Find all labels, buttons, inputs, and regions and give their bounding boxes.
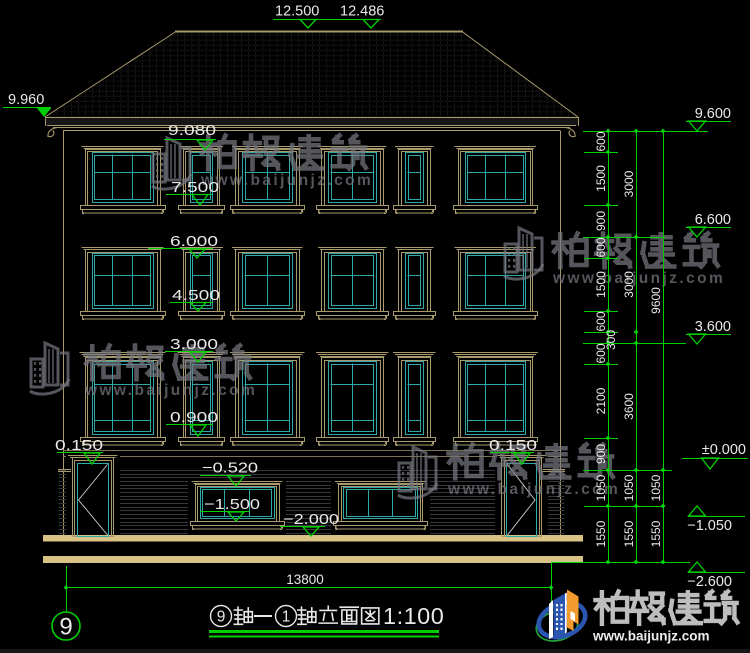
svg-text:9.600: 9.600 xyxy=(695,106,731,122)
svg-text:1550: 1550 xyxy=(649,520,663,547)
svg-text:1050: 1050 xyxy=(649,474,663,501)
svg-text:300: 300 xyxy=(604,330,618,350)
svg-text:www.baijunjz.com: www.baijunjz.com xyxy=(84,382,257,399)
svg-text:9600: 9600 xyxy=(649,287,663,314)
svg-text:6.000: 6.000 xyxy=(170,233,218,250)
svg-text:0.900: 0.900 xyxy=(170,409,218,426)
svg-text:1500: 1500 xyxy=(594,165,608,192)
svg-text:900: 900 xyxy=(594,444,608,464)
svg-text:6.600: 6.600 xyxy=(695,212,731,228)
svg-text:9.960: 9.960 xyxy=(8,92,44,108)
svg-text:−0.520: −0.520 xyxy=(202,460,258,477)
svg-text:1050: 1050 xyxy=(594,474,608,501)
svg-text:1:100: 1:100 xyxy=(383,603,444,629)
svg-text:3.000: 3.000 xyxy=(170,336,218,353)
svg-text:9.080: 9.080 xyxy=(168,122,216,139)
svg-text:−2.000: −2.000 xyxy=(283,511,339,528)
svg-text:1: 1 xyxy=(282,609,291,626)
svg-text:www.baijunjz.com: www.baijunjz.com xyxy=(200,172,373,189)
svg-text:3000: 3000 xyxy=(622,170,636,197)
svg-text:1550: 1550 xyxy=(594,520,608,547)
svg-text:−1.500: −1.500 xyxy=(204,496,260,513)
svg-text:600: 600 xyxy=(594,131,608,151)
svg-text:1500: 1500 xyxy=(594,271,608,298)
svg-text:600: 600 xyxy=(594,237,608,257)
svg-text:12.486: 12.486 xyxy=(340,4,384,20)
svg-text:900: 900 xyxy=(594,211,608,231)
svg-text:1050: 1050 xyxy=(622,474,636,501)
svg-text:13800: 13800 xyxy=(286,572,324,587)
svg-text:12.500: 12.500 xyxy=(275,4,319,20)
svg-text:−2.600: −2.600 xyxy=(687,574,732,590)
svg-text:www.baijunjz.com: www.baijunjz.com xyxy=(592,629,710,644)
svg-text:9: 9 xyxy=(217,609,226,626)
svg-text:0.150: 0.150 xyxy=(489,437,537,454)
svg-text:3600: 3600 xyxy=(622,393,636,420)
svg-text:0.150: 0.150 xyxy=(55,437,103,454)
svg-text:9: 9 xyxy=(59,614,72,641)
svg-text:2100: 2100 xyxy=(594,387,608,414)
svg-text:7.500: 7.500 xyxy=(171,179,219,196)
svg-text:4.500: 4.500 xyxy=(172,287,220,304)
svg-text:www.baijunjz.com: www.baijunjz.com xyxy=(552,270,725,287)
svg-text:1550: 1550 xyxy=(622,520,636,547)
svg-text:3.600: 3.600 xyxy=(695,319,731,335)
svg-text:−1.050: −1.050 xyxy=(687,518,732,534)
svg-text:600: 600 xyxy=(594,311,608,331)
svg-text:±0.000: ±0.000 xyxy=(702,442,746,458)
svg-text:3000: 3000 xyxy=(622,271,636,298)
